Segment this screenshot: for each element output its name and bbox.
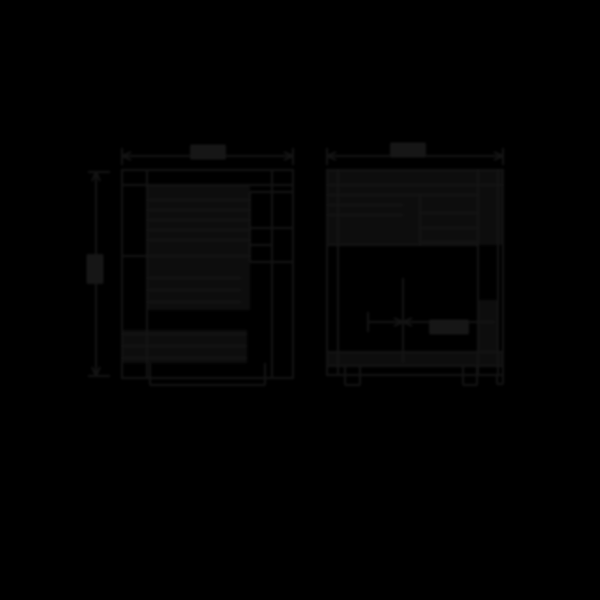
furniture-dimension-diagram bbox=[0, 0, 600, 600]
side-view-dimension-label-blob bbox=[390, 143, 426, 158]
side-view-dimension-label-blob bbox=[429, 320, 469, 335]
side-view-hatch-fill bbox=[327, 171, 503, 245]
technical-drawing-canvas bbox=[0, 0, 600, 600]
diagram-background bbox=[0, 0, 600, 600]
side-view-hatch-fill bbox=[327, 352, 503, 366]
front-view-dimension-label-blob bbox=[190, 145, 226, 160]
front-view-dimension-label-blob bbox=[87, 254, 104, 284]
front-view-hatch-fill bbox=[147, 266, 241, 310]
